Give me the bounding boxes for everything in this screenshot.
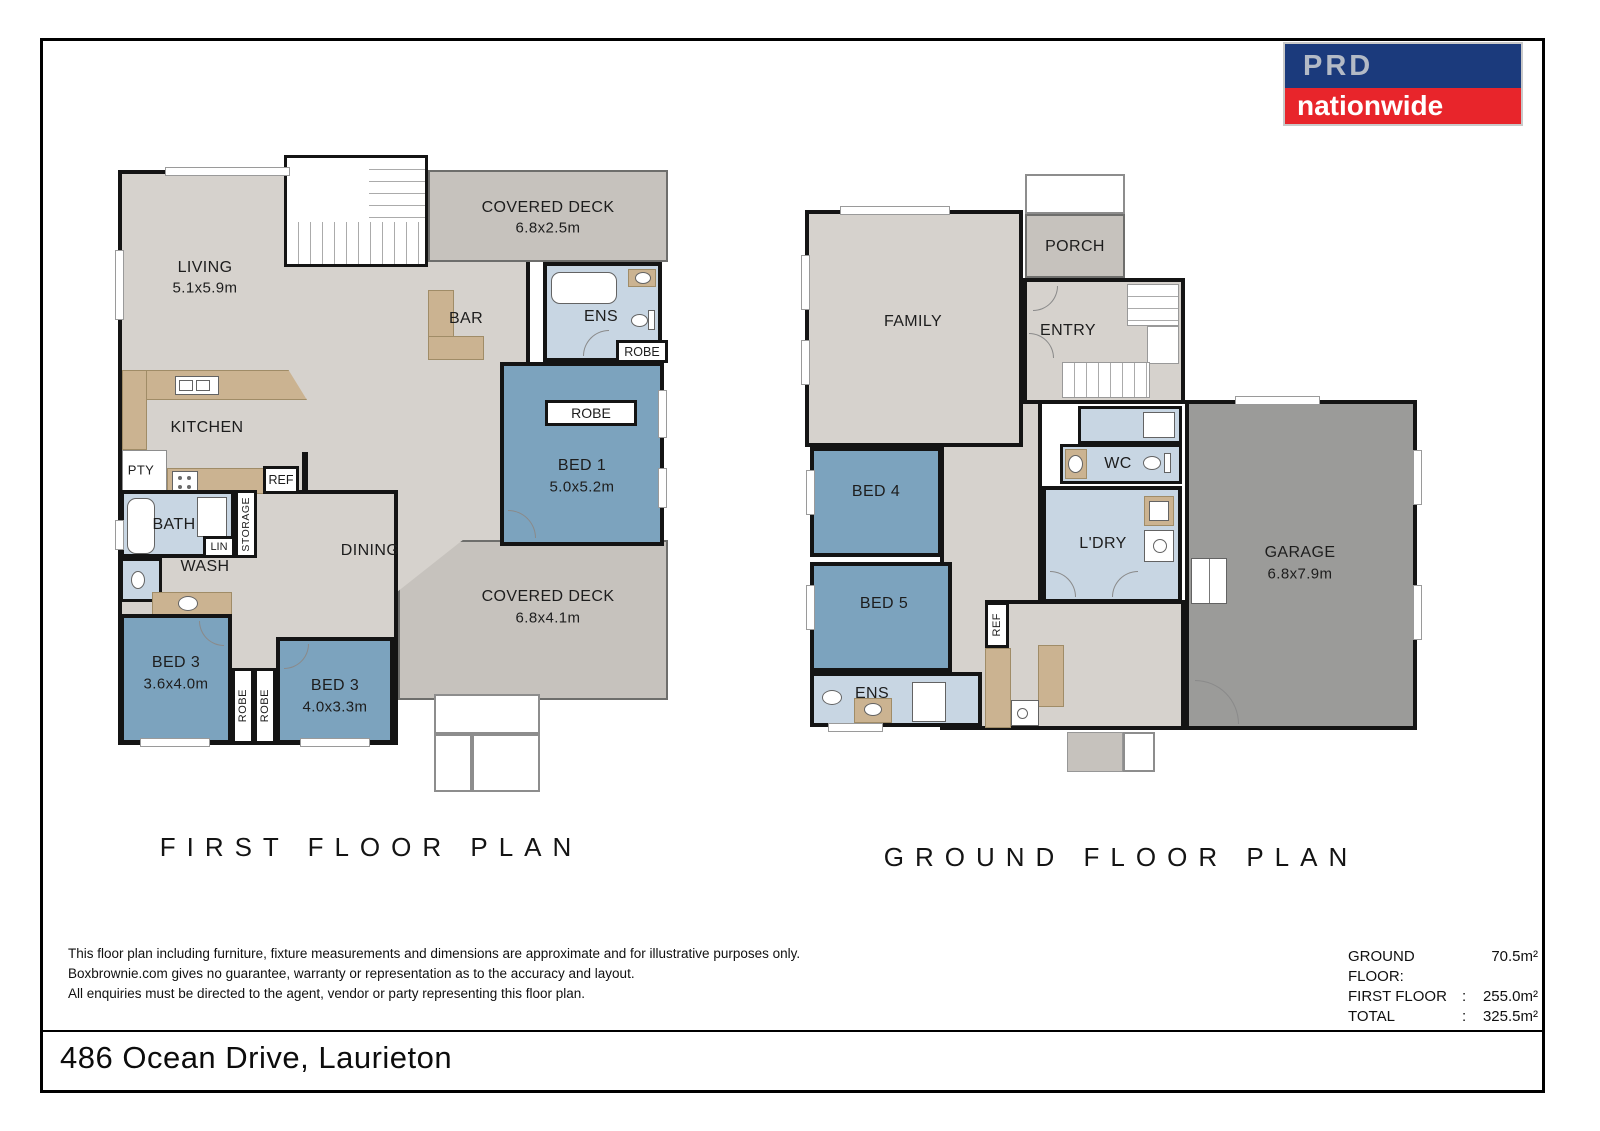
entry-room (1023, 278, 1185, 404)
prd-nationwide-logo: PRD nationwide (1283, 42, 1523, 126)
door-arc (583, 330, 609, 356)
sink-bowl (1017, 708, 1028, 719)
ref-label: REF (991, 613, 1003, 637)
dining-label: DINING (341, 542, 399, 560)
robe-label: ROBE (237, 689, 249, 722)
ground-floor-plan-title: GROUND FLOOR PLAN (884, 842, 1359, 873)
ens-ground-label: ENS (855, 685, 889, 703)
window (806, 470, 815, 515)
robe-label: ROBE (624, 345, 659, 359)
deck-steps-wide (434, 694, 540, 734)
disclaimer-line-1: This floor plan including furniture, fix… (68, 944, 800, 964)
deck-top-dims: 6.8x2.5m (516, 219, 581, 236)
interior-wall (302, 452, 308, 494)
counter-mid (1038, 645, 1064, 707)
basin-icon (635, 272, 651, 284)
entry-stairs-upper (1127, 284, 1179, 326)
linen-closet: LIN (203, 536, 235, 558)
window (840, 206, 950, 215)
porch-steps (1025, 174, 1125, 214)
area-value: 325.5m² (1474, 1007, 1538, 1027)
area-row-first: FIRST FLOOR : 255.0m² (1348, 987, 1538, 1007)
garage-dims: 6.8x7.9m (1268, 565, 1333, 582)
area-label: TOTAL (1348, 1007, 1462, 1027)
bed5-room (810, 562, 952, 672)
bed3b-dims: 4.0x3.3m (303, 698, 368, 715)
area-row-total: TOTAL : 325.5m² (1348, 1007, 1538, 1027)
basin-icon (178, 596, 198, 611)
window (300, 738, 370, 747)
stair-upper-run (369, 158, 425, 222)
first-floor-plan-title: FIRST FLOOR PLAN (160, 832, 583, 863)
window (1413, 450, 1422, 505)
toilet-icon (131, 571, 145, 589)
bed1-label: BED 1 (558, 457, 606, 475)
robe-label: ROBE (571, 405, 611, 421)
area-label: FIRST FLOOR (1348, 987, 1462, 1007)
deck-bottom-label: COVERED DECK (482, 588, 615, 606)
deck-top-label: COVERED DECK (482, 199, 615, 217)
window (115, 250, 124, 320)
kitchen-counter-left (122, 370, 147, 450)
disclaimer-line-3: All enquiries must be directed to the ag… (68, 984, 800, 1004)
shower-icon (912, 682, 946, 722)
ens-label: ENS (584, 308, 618, 326)
lin-label: LIN (210, 541, 227, 553)
rear-step (1067, 732, 1123, 772)
stove-icon (172, 471, 198, 491)
logo-nationwide-text: nationwide (1285, 88, 1521, 124)
wc-label: WC (1104, 455, 1131, 473)
door-arc (1033, 286, 1058, 311)
bed3a-dims: 3.6x4.0m (144, 675, 209, 692)
area-label: GROUND FLOOR: (1348, 947, 1462, 987)
window (115, 520, 124, 550)
laundry-tub-icon (1144, 496, 1174, 526)
bar-label: BAR (449, 310, 483, 328)
sink-bowl (196, 380, 210, 391)
door-arc (284, 644, 309, 669)
window (140, 738, 210, 747)
door-arc (1112, 571, 1138, 597)
bath-label: BATH (152, 516, 195, 534)
bed1-dims: 5.0x5.2m (550, 478, 615, 495)
door-arc (1050, 571, 1076, 597)
cupboard-divider (1209, 559, 1210, 603)
porch-label: PORCH (1045, 238, 1105, 256)
kitchen-sink-icon (175, 376, 219, 395)
garage-door-arc (1195, 680, 1239, 724)
window (828, 723, 883, 732)
bed4-room (810, 447, 942, 557)
window (801, 340, 810, 385)
entry-label: ENTRY (1040, 322, 1096, 340)
bed3a-label: BED 3 (152, 654, 200, 672)
window (801, 255, 810, 310)
bar-counter-horizontal (428, 336, 484, 360)
bed1-room (500, 362, 664, 546)
area-separator (1462, 947, 1474, 987)
garage-label: GARAGE (1265, 544, 1336, 562)
window (1413, 585, 1422, 640)
area-separator: : (1462, 987, 1474, 1007)
window (165, 167, 290, 176)
kitchen-sink-icon (1011, 700, 1039, 726)
area-row-ground: GROUND FLOOR: 70.5m² (1348, 947, 1538, 987)
basin-icon (864, 703, 882, 716)
counter-left (985, 648, 1011, 728)
kitchen-label: KITCHEN (170, 419, 243, 437)
toilet-tank-icon (648, 310, 655, 330)
sink-bowl (179, 380, 193, 391)
bathtub-icon (551, 272, 617, 304)
shower-room (1078, 406, 1182, 444)
bed4-label: BED 4 (852, 483, 900, 501)
tub-bowl (1149, 501, 1169, 521)
ref-box-ground: REF (985, 602, 1009, 648)
robe-closet-b: ROBE (254, 668, 276, 744)
living-label: LIVING (178, 259, 233, 277)
staircase-first-floor (284, 155, 428, 267)
bed3b-label: BED 3 (311, 677, 359, 695)
storage-label: STORAGE (240, 497, 252, 552)
entry-stairs-lower (1062, 362, 1150, 398)
floorplan-page: PRD nationwide ROBE (0, 0, 1600, 1131)
shower-tray-icon (1143, 412, 1175, 438)
washer-drum (1153, 539, 1167, 553)
property-address: 486 Ocean Drive, Laurieton (60, 1040, 452, 1076)
toilet-icon (822, 690, 842, 705)
disclaimer-line-2: Boxbrownie.com gives no guarantee, warra… (68, 964, 800, 984)
stair-lower-run (287, 222, 425, 264)
door-arc (199, 621, 224, 646)
rear-steps (1123, 732, 1155, 772)
bed5-label: BED 5 (860, 595, 908, 613)
area-separator: : (1462, 1007, 1474, 1027)
robe-box-ensuite: ROBE (616, 340, 668, 363)
ensuite-ground (810, 672, 982, 727)
robe-closet-a: ROBE (232, 668, 254, 744)
living-dims: 5.1x5.9m (173, 279, 238, 296)
door-arc (508, 510, 536, 538)
entry-stairs-landing (1147, 326, 1179, 364)
area-value: 70.5m² (1474, 947, 1538, 987)
ref-box: REF (263, 466, 299, 494)
robe-box-bed1: ROBE (545, 400, 637, 426)
footer-divider (40, 1030, 1545, 1032)
deck-steps-landing (472, 734, 540, 792)
garage-cupboard (1191, 558, 1227, 604)
ref-label: REF (269, 473, 294, 487)
pty-label: PTY (128, 464, 154, 479)
disclaimer-text: This floor plan including furniture, fix… (68, 944, 800, 1004)
logo-prd-text: PRD (1285, 44, 1521, 88)
area-value: 255.0m² (1474, 987, 1538, 1007)
wash-label: WASH (180, 558, 229, 576)
window (1235, 396, 1320, 405)
storage-closet: STORAGE (235, 490, 257, 558)
robe-label: ROBE (259, 689, 271, 722)
window (658, 468, 667, 508)
stove-burners (178, 476, 182, 480)
window (806, 585, 815, 630)
basin-icon (1068, 455, 1083, 473)
window (658, 390, 667, 438)
toilet-icon (631, 314, 648, 327)
shower-icon (197, 497, 227, 537)
family-label: FAMILY (884, 313, 942, 331)
deck-bottom-dims: 6.8x4.1m (516, 609, 581, 626)
bathtub-icon (127, 498, 155, 554)
deck-steps-down (434, 734, 472, 792)
ldry-label: L'DRY (1079, 535, 1126, 553)
washing-machine-icon (1144, 530, 1174, 562)
toilet-tank-icon (1164, 453, 1171, 473)
floor-areas-summary: GROUND FLOOR: 70.5m² FIRST FLOOR : 255.0… (1348, 947, 1538, 1027)
toilet-icon (1143, 456, 1161, 470)
